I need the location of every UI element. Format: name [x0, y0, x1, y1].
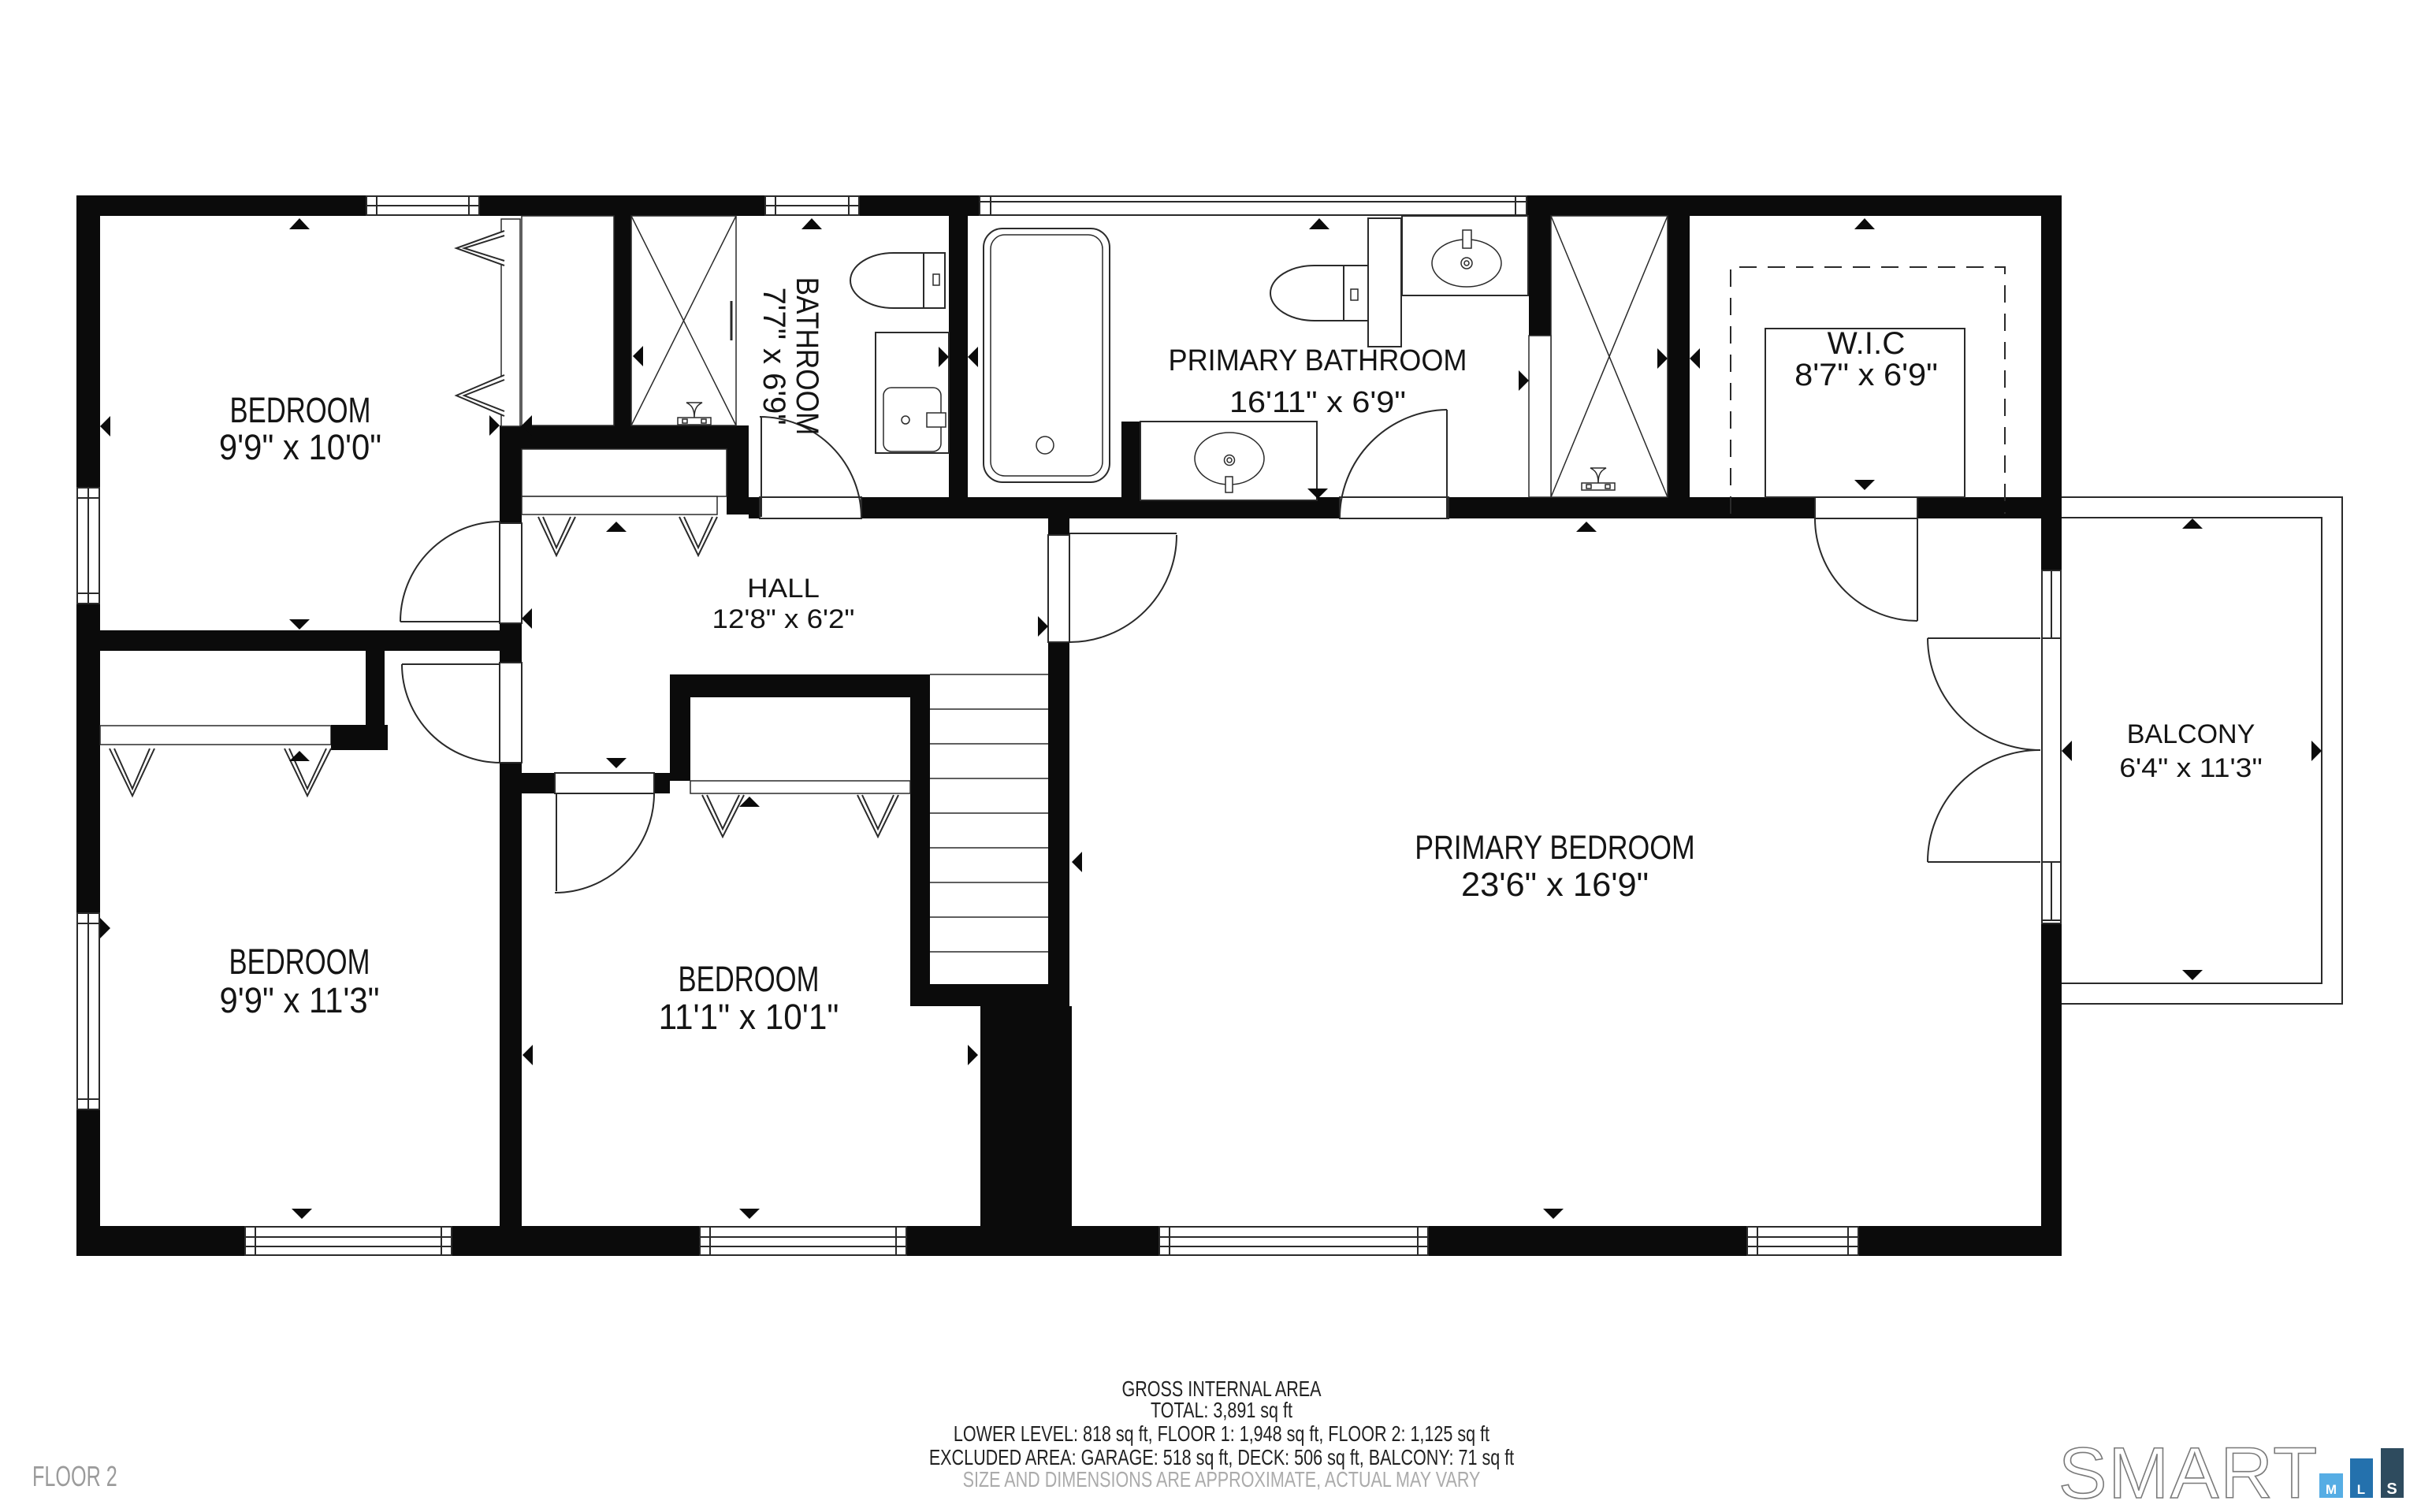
svg-text:9'9" x 11'3": 9'9" x 11'3": [219, 982, 379, 1021]
svg-text:SIZE AND DIMENSIONS ARE APPROX: SIZE AND DIMENSIONS ARE APPROXIMATE, ACT…: [963, 1467, 1481, 1492]
svg-text:FLOOR 2: FLOOR 2: [32, 1461, 117, 1493]
svg-text:BATHROOM: BATHROOM: [790, 277, 826, 436]
svg-text:LOWER LEVEL: 818 sq ft, FLOOR: LOWER LEVEL: 818 sq ft, FLOOR 1: 1,948 s…: [954, 1421, 1489, 1446]
svg-text:23'6" x 16'9": 23'6" x 16'9": [1461, 866, 1649, 904]
svg-text:L: L: [2357, 1482, 2365, 1497]
svg-text:TOTAL: 3,891 sq ft: TOTAL: 3,891 sq ft: [1151, 1398, 1292, 1422]
svg-text:PRIMARY BEDROOM: PRIMARY BEDROOM: [1415, 829, 1695, 867]
svg-text:6'4" x 11'3": 6'4" x 11'3": [2119, 753, 2263, 783]
svg-text:BALCONY: BALCONY: [2127, 719, 2256, 749]
svg-text:PRIMARY BATHROOM: PRIMARY BATHROOM: [1169, 343, 1467, 377]
svg-text:SMART: SMART: [2058, 1433, 2319, 1512]
svg-text:BEDROOM: BEDROOM: [229, 942, 370, 982]
svg-text:11'1" x 10'1": 11'1" x 10'1": [659, 997, 839, 1037]
svg-text:7'7" x 6'9": 7'7" x 6'9": [757, 288, 791, 425]
svg-text:HALL: HALL: [747, 574, 820, 603]
svg-text:M: M: [2326, 1482, 2337, 1497]
svg-text:BEDROOM: BEDROOM: [679, 960, 820, 999]
svg-text:BEDROOM: BEDROOM: [230, 391, 371, 430]
svg-text:16'11" x 6'9": 16'11" x 6'9": [1229, 386, 1406, 419]
svg-text:S: S: [2386, 1480, 2397, 1498]
svg-text:12'8" x 6'2": 12'8" x 6'2": [712, 604, 855, 633]
svg-text:9'9" x 10'0": 9'9" x 10'0": [219, 429, 381, 468]
svg-text:W.I.C: W.I.C: [1828, 325, 1906, 361]
svg-text:EXCLUDED AREA: GARAGE: 518 sq: EXCLUDED AREA: GARAGE: 518 sq ft, DECK: …: [929, 1445, 1514, 1469]
svg-text:8'7" x 6'9": 8'7" x 6'9": [1794, 357, 1938, 392]
